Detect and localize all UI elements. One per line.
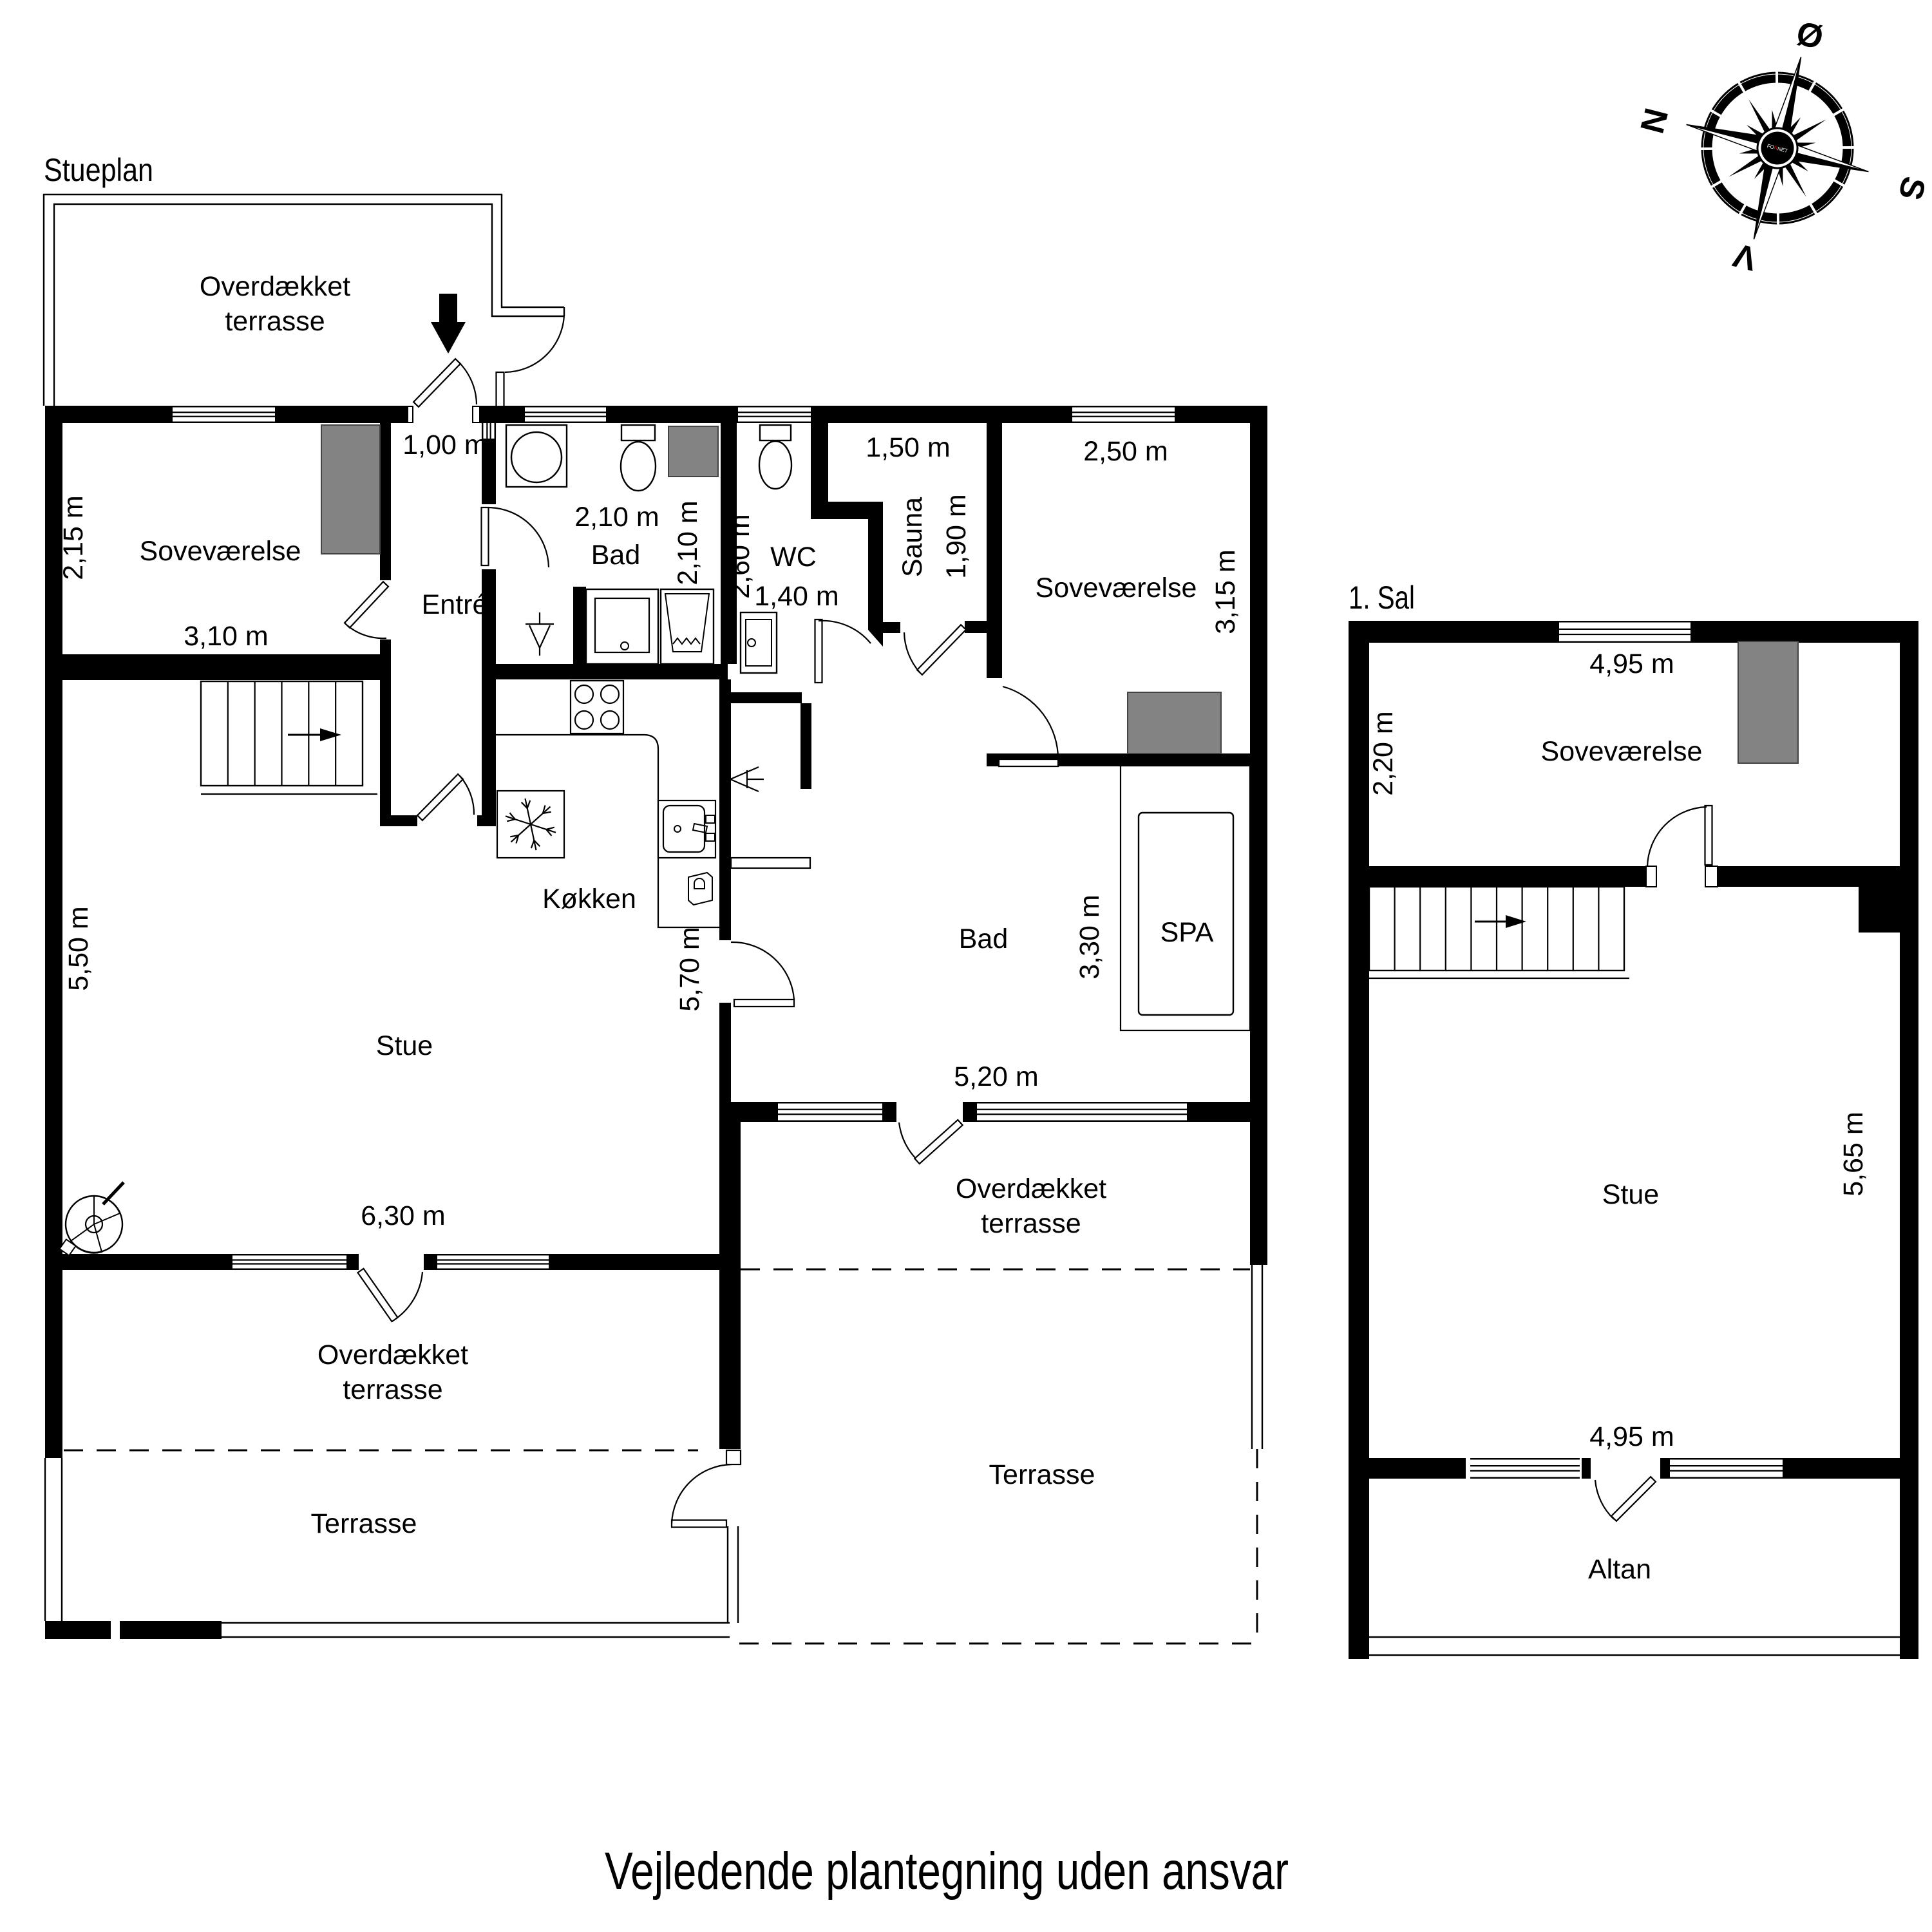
svg-text:2,15 m: 2,15 m xyxy=(58,495,89,580)
svg-text:Soveværelse: Soveværelse xyxy=(1036,573,1197,603)
svg-text:5,50 m: 5,50 m xyxy=(63,906,94,990)
svg-text:terrasse: terrasse xyxy=(225,306,325,337)
svg-text:4,95 m: 4,95 m xyxy=(1589,649,1674,679)
svg-text:3,15 m: 3,15 m xyxy=(1210,549,1241,634)
svg-text:Overdækket: Overdækket xyxy=(317,1340,468,1370)
svg-text:Bad: Bad xyxy=(959,923,1009,954)
svg-text:3,10 m: 3,10 m xyxy=(184,621,268,652)
svg-text:1,50 m: 1,50 m xyxy=(866,432,950,463)
svg-text:5,70 m: 5,70 m xyxy=(674,927,705,1011)
svg-text:2,20 m: 2,20 m xyxy=(1368,711,1399,795)
svg-text:Soveværelse: Soveværelse xyxy=(140,536,301,567)
svg-text:5,65 m: 5,65 m xyxy=(1838,1112,1869,1196)
svg-text:5,20 m: 5,20 m xyxy=(954,1061,1038,1092)
svg-text:Soveværelse: Soveværelse xyxy=(1541,736,1703,767)
svg-text:terrasse: terrasse xyxy=(981,1208,1081,1239)
svg-text:1,90 m: 1,90 m xyxy=(941,494,972,578)
svg-text:4,95 m: 4,95 m xyxy=(1589,1421,1674,1452)
svg-text:Stue: Stue xyxy=(376,1030,433,1061)
svg-text:Bad: Bad xyxy=(591,540,641,571)
svg-text:SPA: SPA xyxy=(1160,917,1214,948)
svg-text:Overdækket: Overdækket xyxy=(200,271,350,302)
svg-text:Sauna: Sauna xyxy=(897,497,928,577)
svg-text:Vejledende plantegning uden an: Vejledende plantegning uden ansvar xyxy=(605,1842,1289,1900)
svg-text:Altan: Altan xyxy=(1588,1554,1651,1585)
svg-text:Entré: Entré xyxy=(422,589,488,620)
svg-text:2,50 m: 2,50 m xyxy=(1083,436,1168,467)
svg-text:terrasse: terrasse xyxy=(343,1374,442,1405)
svg-text:Køkken: Køkken xyxy=(542,884,636,914)
svg-text:1,00 m: 1,00 m xyxy=(402,430,487,460)
svg-text:Stue: Stue xyxy=(1602,1179,1659,1210)
svg-text:Terrasse: Terrasse xyxy=(989,1459,1095,1490)
svg-text:2,10 m: 2,10 m xyxy=(672,500,703,585)
svg-text:Stueplan: Stueplan xyxy=(44,152,153,188)
svg-text:Terrasse: Terrasse xyxy=(311,1508,417,1539)
svg-text:1. Sal: 1. Sal xyxy=(1349,580,1415,616)
svg-text:1,40 m: 1,40 m xyxy=(754,581,838,612)
svg-text:Overdækket: Overdækket xyxy=(956,1173,1106,1204)
svg-text:WC: WC xyxy=(770,542,817,573)
svg-text:2,10 m: 2,10 m xyxy=(574,502,659,533)
svg-text:3,30 m: 3,30 m xyxy=(1074,895,1105,979)
svg-text:6,30 m: 6,30 m xyxy=(361,1200,445,1231)
svg-text:2,60 m: 2,60 m xyxy=(724,514,755,598)
